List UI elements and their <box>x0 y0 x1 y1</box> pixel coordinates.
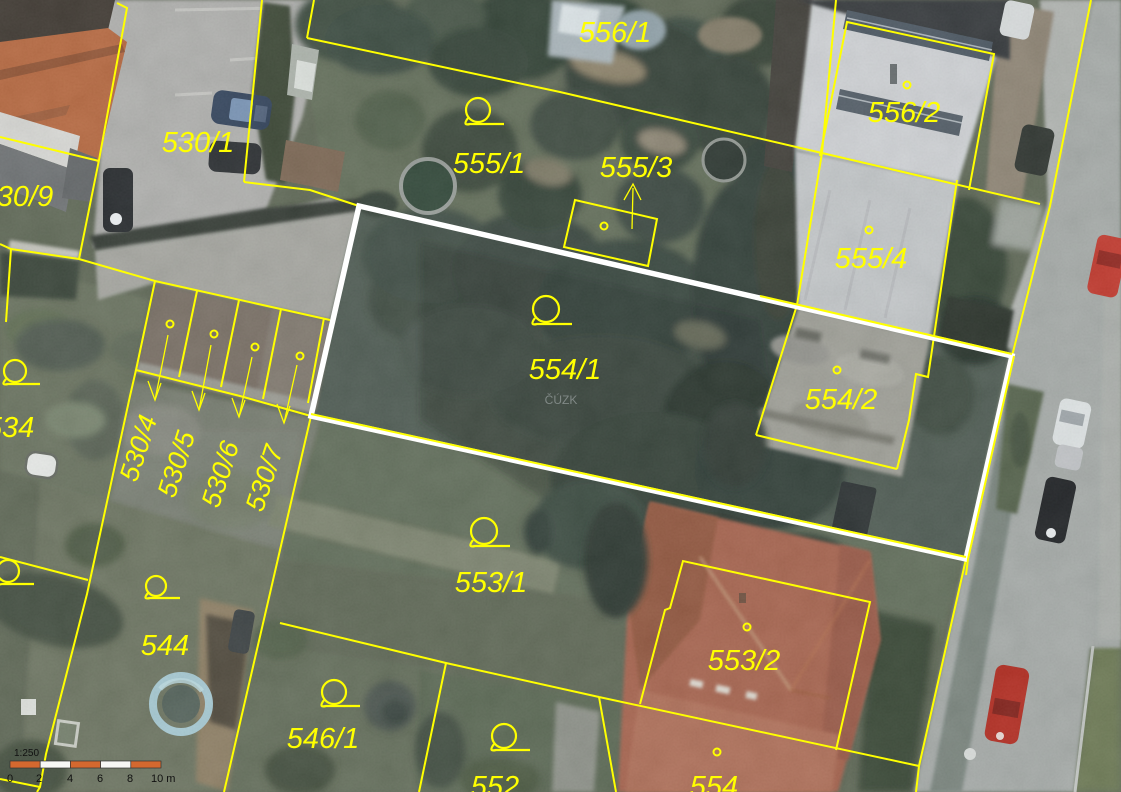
svg-text:556/1: 556/1 <box>579 17 652 49</box>
svg-text:6: 6 <box>97 773 103 785</box>
svg-text:4: 4 <box>67 773 73 785</box>
svg-text:554/2: 554/2 <box>805 384 878 416</box>
svg-text:554/1: 554/1 <box>529 354 602 386</box>
svg-text:555/4: 555/4 <box>835 243 908 275</box>
svg-text:0: 0 <box>7 773 13 785</box>
svg-text:10 m: 10 m <box>151 773 175 785</box>
svg-text:530/1: 530/1 <box>162 127 235 159</box>
svg-text:556/2: 556/2 <box>868 97 941 129</box>
svg-text:552: 552 <box>471 771 519 792</box>
svg-text:544: 544 <box>141 630 189 662</box>
svg-text:1:250: 1:250 <box>14 748 39 759</box>
svg-text:534: 534 <box>0 412 34 444</box>
svg-text:546/1: 546/1 <box>287 723 360 755</box>
svg-text:553/2: 553/2 <box>708 645 781 677</box>
svg-text:555/1: 555/1 <box>453 148 526 180</box>
svg-text:ČÚZK: ČÚZK <box>545 392 578 407</box>
svg-text:2: 2 <box>36 773 42 785</box>
svg-text:555/3: 555/3 <box>600 152 673 184</box>
svg-text:554: 554 <box>690 771 738 792</box>
svg-text:8: 8 <box>127 773 133 785</box>
svg-text:553/1: 553/1 <box>455 567 528 599</box>
svg-text:30/9: 30/9 <box>0 181 53 213</box>
